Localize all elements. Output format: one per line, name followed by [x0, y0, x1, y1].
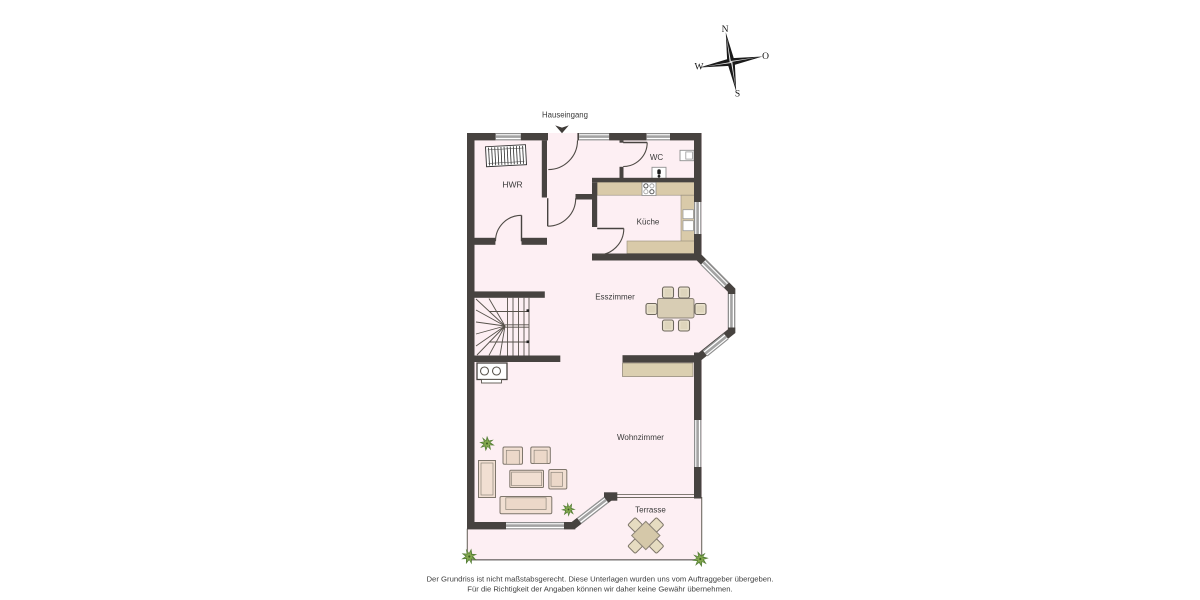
svg-text:S: S	[735, 90, 740, 100]
svg-text:Terrasse: Terrasse	[635, 505, 666, 514]
svg-text:Hauseingang: Hauseingang	[542, 111, 588, 120]
svg-text:W: W	[695, 63, 704, 73]
svg-text:WC: WC	[650, 153, 664, 162]
svg-text:O: O	[762, 52, 769, 62]
svg-text:Küche: Küche	[637, 217, 660, 226]
svg-text:Esszimmer: Esszimmer	[595, 292, 635, 301]
svg-text:Wohnzimmer: Wohnzimmer	[617, 433, 664, 442]
svg-text:N: N	[722, 25, 729, 35]
svg-text:HWR: HWR	[502, 180, 522, 190]
svg-text:Für die Richtigkeit der Angabe: Für die Richtigkeit der Angaben können w…	[467, 584, 732, 593]
svg-text:Der Grundriss ist nicht maßsta: Der Grundriss ist nicht maßstabsgerecht.…	[427, 574, 774, 583]
